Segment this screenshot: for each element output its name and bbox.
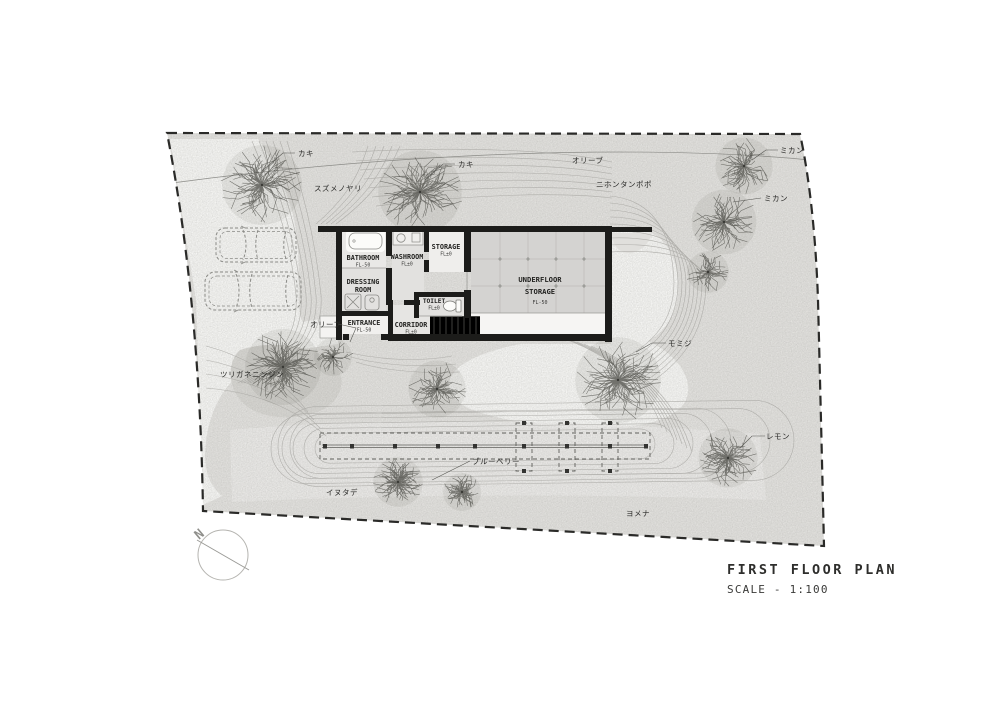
label-toilet: TOILET — [423, 298, 446, 305]
tree-shrub-east — [687, 251, 729, 293]
plant-label-yomena: ヨメナ — [626, 509, 650, 518]
label-corridor: CORRIDOR — [395, 321, 429, 329]
level-underfloor: FL-50 — [532, 300, 547, 306]
washbasin-counter — [393, 231, 423, 245]
sheet-scale: SCALE - 1:100 — [727, 583, 829, 596]
plant-label-mikan-lower: ミカン — [764, 194, 788, 203]
bush-blueberry-1 — [373, 457, 422, 506]
plant-label-olive-garden: オリーブ — [310, 319, 342, 329]
tree-lemon — [699, 429, 758, 488]
level-entrance: FL-50 — [357, 328, 372, 334]
tree-olive-garden — [245, 329, 321, 405]
plant-label-kaki-center: カキ — [458, 160, 474, 169]
tree-mikan-lower — [692, 190, 757, 255]
label-storage: STORAGE — [432, 243, 461, 251]
engawa-strip — [471, 313, 605, 334]
label-dressing-2: ROOM — [355, 286, 371, 294]
label-underfloor-2: STORAGE — [525, 287, 555, 296]
plant-label-blueberry: ブルーベリー — [472, 456, 520, 466]
stair-landing — [430, 316, 480, 334]
title-block: FIRST FLOOR PLAN SCALE - 1:100 — [727, 562, 897, 596]
plant-label-suzumenoyari: スズメノヤリ — [314, 183, 362, 193]
label-dressing-1: DRESSING — [347, 278, 380, 286]
tree-kaki-center — [378, 150, 462, 234]
level-bathroom: FL-50 — [356, 263, 371, 269]
north-arrow: N — [192, 526, 249, 580]
label-underfloor-1: UNDERFLOOR — [518, 275, 562, 284]
plant-label-tsuriganeninjin: ツリガネニンジン — [220, 369, 284, 379]
plant-label-nihon-tanpopo: ニホンタンポポ — [596, 180, 652, 189]
label-bathroom: BATHROOM — [347, 254, 380, 262]
level-corridor: FL±0 — [405, 330, 417, 336]
bush-blueberry-2 — [443, 473, 481, 511]
toilet-bowl — [444, 300, 462, 312]
label-washroom: WASHROOM — [391, 253, 424, 261]
level-storage: FL±0 — [440, 252, 452, 258]
label-entrance: ENTRANCE — [348, 319, 381, 327]
bathtub — [346, 230, 385, 252]
plant-label-lemon: レモン — [766, 432, 790, 441]
site-plan-drawing: BATHROOM FL-50 WASHROOM FL±0 STORAGE FL±… — [0, 0, 1000, 707]
plant-label-olive-row: オリーブ — [572, 155, 604, 165]
plant-label-momiji: モミジ — [668, 339, 692, 348]
tree-mikan-upper — [716, 138, 773, 195]
floor-plan-sheet: BATHROOM FL-50 WASHROOM FL±0 STORAGE FL±… — [0, 0, 1000, 707]
plant-label-kaki-west: カキ — [298, 149, 314, 158]
plant-label-inutade: イヌタデ — [326, 487, 358, 497]
level-toilet: FL±0 — [428, 306, 440, 312]
level-washroom: FL±0 — [401, 262, 413, 268]
plant-label-mikan-upper: ミカン — [780, 146, 804, 155]
tree-momiji — [575, 337, 661, 423]
north-label: N — [192, 526, 208, 543]
sheet-title: FIRST FLOOR PLAN — [727, 562, 897, 578]
